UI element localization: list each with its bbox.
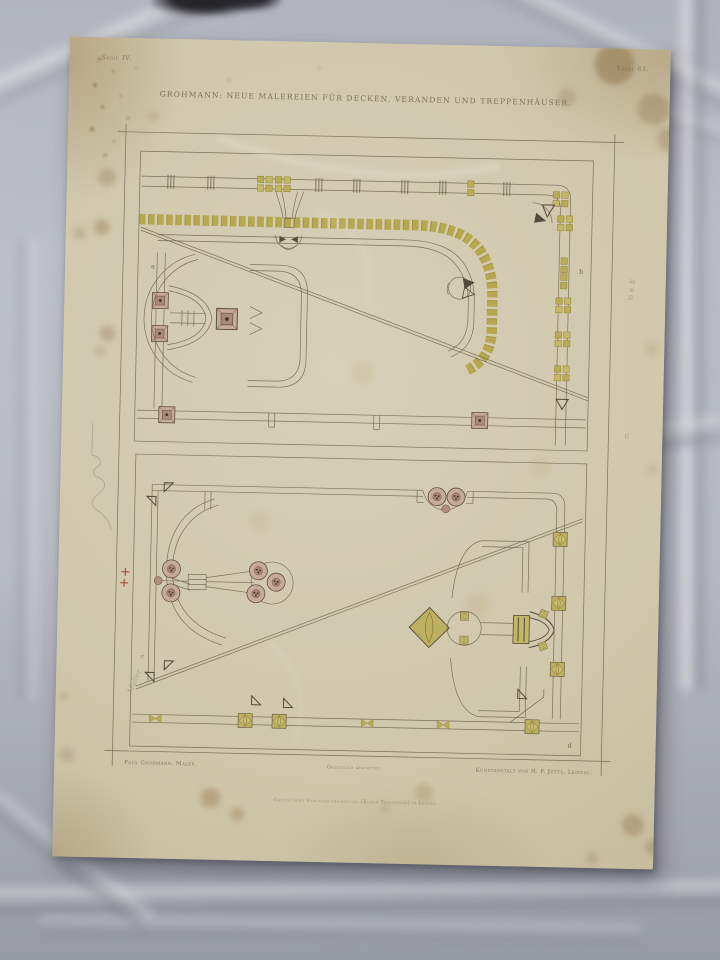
foxing-speckles [89,57,321,162]
gold-chain-band [136,219,494,371]
red-cross-marks [120,568,129,587]
caption-printer: Kunstanstalt von H. F. Jütte, Leipzig. [475,768,591,777]
panel-label-c: c [140,653,144,660]
panel-label-a: a [151,262,155,270]
bell-motif [167,286,262,352]
pencil-note-right: ½ n. E. [626,277,637,301]
circle-pennant-motif [447,277,475,300]
cloth-fold [676,0,706,690]
pencil-annotations: ½ n. E. Müller 6 [87,265,637,706]
plate-title: GROHMANN: NEUE MALEREIEN FÜR DECKEN, VER… [160,90,572,108]
pencil-moulding-sketch [90,423,113,529]
panel-label-d: d [568,742,572,750]
ceiling-design-upper-panel [134,174,593,446]
rosette-cluster [154,560,294,605]
pencil-note-left: Müller [125,668,144,696]
panel-label-b: b [579,268,583,276]
plate-frame [104,124,624,777]
dark-object-top-edge [152,0,282,16]
print-plate: Serie IV. Tafel 61. GROHMANN: NEUE MALER… [52,37,671,870]
leaf-cross-motif [407,539,556,718]
cloth-fold [16,240,38,700]
semicircle-rosette-motif [417,487,474,513]
serie-label: Serie IV. [101,53,131,62]
plate-artwork: Serie IV. Tafel 61. GROHMANN: NEUE MALER… [52,37,671,870]
caption-rights: Gesetzlich geschützt. [327,764,381,771]
plate-texts: Serie IV. Tafel 61. GROHMANN: NEUE MALER… [85,53,649,811]
ceiling-design-lower-panel [132,481,584,735]
cloth-fold [0,880,720,914]
photo-scene: Serie IV. Tafel 61. GROHMANN: NEUE MALER… [0,0,720,960]
pencil-digit: 6 [624,432,629,441]
imprint-line: Gilbers'sche Verlagsbuchhandlung (Eugen … [273,796,437,807]
caption-artist: Paul Grohmann, Maler. [124,760,197,768]
cloth-fold [40,916,640,942]
corner-pinwheel-motif [532,203,554,223]
